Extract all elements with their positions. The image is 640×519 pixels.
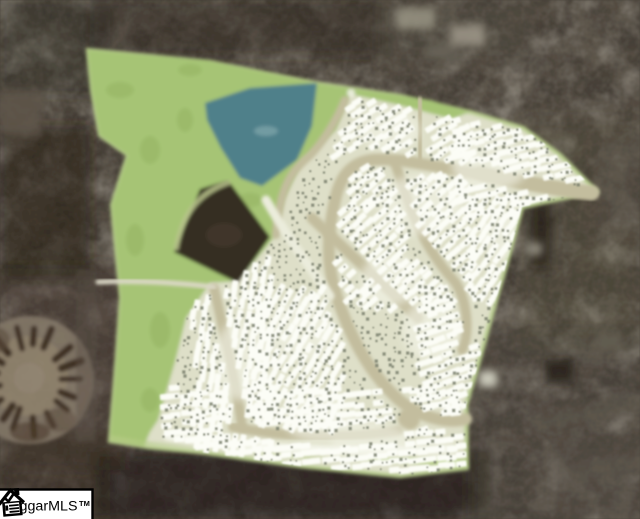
svg-text:TM: TM: [79, 499, 90, 508]
svg-text:ggarMLS: ggarMLS: [20, 499, 78, 514]
